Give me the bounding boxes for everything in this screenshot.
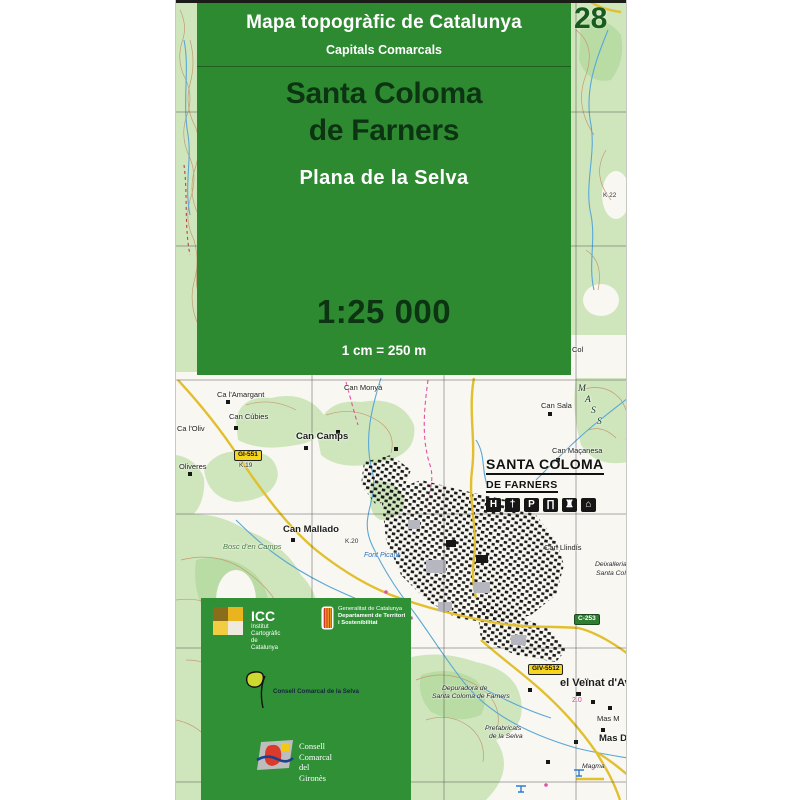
km-marker-label: K 22 (603, 193, 616, 200)
map-title-line1: Santa Coloma (197, 77, 571, 111)
town-name-line2: DE FARNERS (486, 479, 558, 493)
farm-label: Can Cúbies (229, 413, 268, 421)
farm-label: Ca l'Oliv (177, 425, 205, 433)
banner-divider (197, 66, 571, 67)
farm-label: Can Sala (541, 402, 572, 410)
facility-label: Magma (582, 764, 605, 771)
village-label: el Veïnat d'Av (560, 678, 627, 689)
sheet-number: 28 (574, 2, 607, 36)
generalitat-logo-block: Generalitat de Catalunya Departament de … (321, 606, 334, 635)
spring-label: Font Picant (364, 552, 399, 559)
hospital-icon: H (486, 498, 501, 512)
selva-label: Consell Comarcal de la Selva (273, 688, 368, 695)
road-shield: GIV-5512 (528, 664, 563, 675)
girones-line1: Consell (299, 741, 332, 752)
town-name-block: SANTA COLOMA DE FARNERS H†P∏♜⌂ (486, 456, 604, 512)
icc-name-line1: Institut Cartogràfic (251, 624, 280, 638)
heritage-houses-icon: ⌂ (581, 498, 596, 512)
farm-label: Can Monyà (344, 384, 382, 392)
farm-label: Ca l'Amargant (217, 391, 264, 399)
facility-label: de la Selva (489, 734, 523, 741)
generalitat-line1: Generalitat de Catalunya (338, 606, 428, 613)
facility-label: Santa Colo (596, 571, 627, 578)
place-label: Col (572, 346, 583, 354)
church-icon: † (505, 498, 520, 512)
farm-label: Can Llindís (544, 544, 582, 552)
girones-logo-icon (255, 738, 295, 774)
km-marker-label: K.20 (345, 539, 358, 546)
selva-logo-block: Consell Comarcal de la Selva (241, 668, 271, 715)
road-shield: C-253 (574, 614, 600, 625)
facility-label: Santa Coloma de Farners (432, 694, 510, 701)
road-shield: GI-551 (234, 450, 262, 461)
facility-label: Deixalleria (595, 562, 627, 569)
title-panel: Mapa topogràfic de Catalunya Capitals Co… (197, 3, 571, 375)
girones-logo-block: Consell Comarcal del Gironès (255, 738, 295, 779)
parking-icon: P (524, 498, 539, 512)
girones-line2: Comarcal (299, 752, 332, 763)
scale-note: 1 cm = 250 m (197, 343, 571, 358)
massif-letter: S (597, 418, 602, 428)
massif-letter: S (591, 407, 596, 417)
forest-label: Bosc d'en Camps (223, 543, 282, 551)
massif-letter: M (578, 385, 586, 395)
facility-label: Depuradora de (442, 686, 487, 693)
distance-label: 2.0 (572, 697, 582, 704)
map-cover-photo: K 22ColMASSCan MonyàCa l'AmargantCan Sal… (175, 0, 627, 800)
farm-label: Oliveres (179, 463, 207, 471)
village-label: Mas D (599, 734, 627, 744)
senyera-shield-icon (321, 606, 334, 630)
map-title-line2: de Farners (197, 114, 571, 148)
facility-label: Prefabricats (485, 726, 521, 733)
selva-leaf-icon (241, 668, 271, 710)
km-marker-label: K.19 (239, 463, 252, 470)
icc-acronym: ICC (251, 609, 280, 624)
icc-name-line2: de Catalunya (251, 638, 280, 652)
farm-label: Mas M (597, 715, 620, 723)
village-label: Can Camps (296, 432, 348, 442)
generalitat-line3: i Sostenibilitat (338, 620, 428, 627)
publishers-band: ICC Institut Cartogràfic de Catalunya Ge… (201, 598, 411, 800)
massif-letter: A (585, 396, 591, 406)
castle-icon: ♜ (562, 498, 577, 512)
farm-label: Can Maçanesa (552, 447, 602, 455)
town-name-line1: SANTA COLOMA (486, 456, 604, 475)
girones-line3: del Gironès (299, 762, 332, 783)
museum-icon: ∏ (543, 498, 558, 512)
map-subtitle: Plana de la Selva (197, 167, 571, 190)
village-label: Can Mallado (283, 525, 339, 535)
series-subtitle: Capitals Comarcals (197, 43, 571, 57)
photo-top-edge (176, 0, 627, 3)
icc-logo (213, 607, 243, 635)
scale-text: 1:25 000 (197, 293, 571, 331)
series-title: Mapa topogràfic de Catalunya (197, 12, 571, 34)
town-services-pictograms: H†P∏♜⌂ (486, 498, 604, 512)
